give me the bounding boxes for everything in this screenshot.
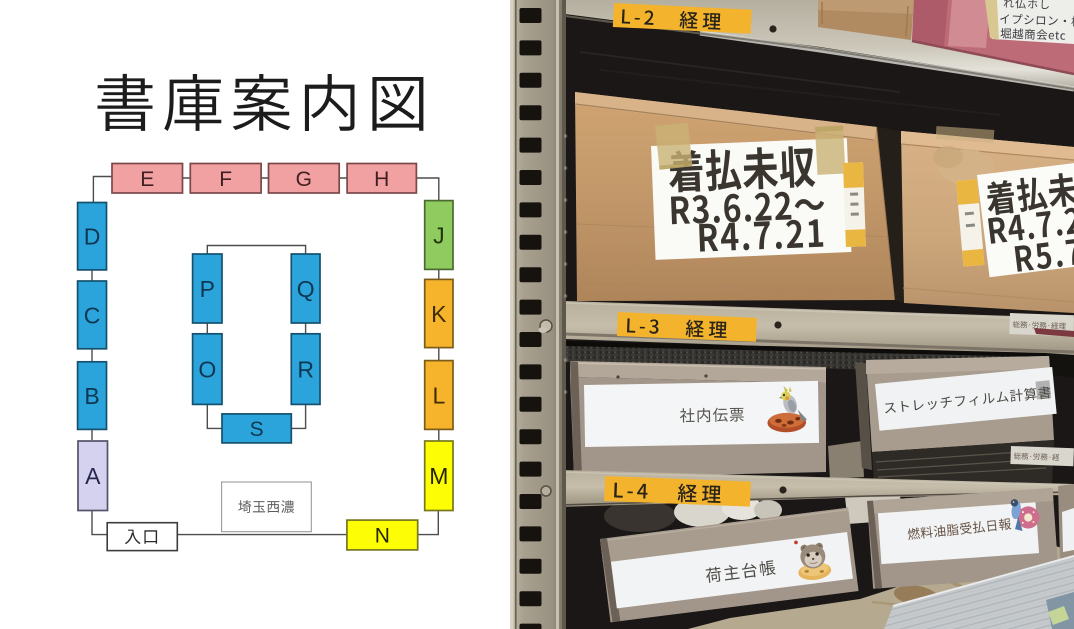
svg-text:B: B — [84, 383, 99, 409]
svg-text:P: P — [200, 276, 215, 302]
svg-text:M: M — [429, 463, 448, 489]
svg-text:N: N — [375, 525, 390, 548]
svg-text:J: J — [433, 222, 445, 248]
svg-text:G: G — [296, 168, 312, 191]
svg-text:L: L — [432, 382, 445, 408]
svg-text:O: O — [198, 357, 216, 383]
svg-text:D: D — [84, 224, 101, 250]
svg-text:K: K — [431, 301, 447, 327]
svg-text:C: C — [84, 302, 101, 328]
svg-text:R: R — [297, 357, 314, 383]
svg-text:A: A — [85, 463, 101, 489]
svg-text:F: F — [219, 168, 232, 191]
svg-text:S: S — [250, 418, 264, 441]
svg-text:E: E — [140, 168, 154, 191]
svg-text:Q: Q — [297, 276, 315, 302]
svg-text:H: H — [374, 168, 389, 191]
